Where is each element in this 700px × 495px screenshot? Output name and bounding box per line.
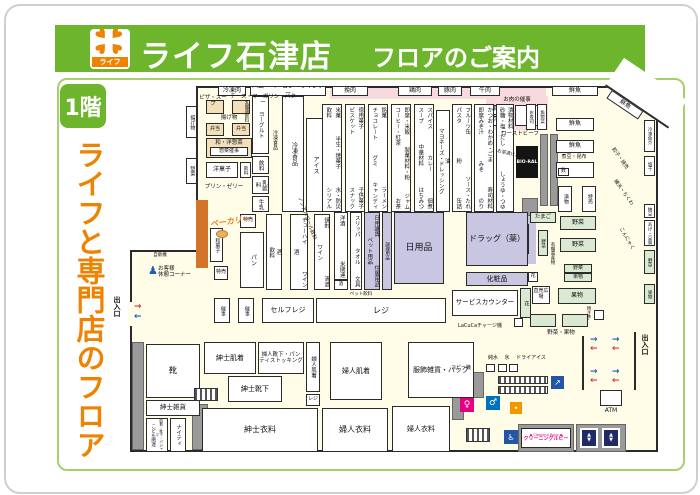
escalator	[498, 386, 548, 394]
aisle-label: 油	[443, 158, 449, 164]
aisle-label: みそ	[477, 161, 483, 172]
wall-frozen-seafood: 冷凍魚介	[644, 120, 655, 152]
aisle-label: お茶	[394, 198, 400, 209]
roast-beef-label: ローストビーフ	[492, 131, 548, 137]
pillar	[540, 134, 548, 206]
egg-case: たまご	[530, 212, 556, 223]
sale-box-low: 特売	[214, 266, 228, 280]
pudding-jelly-label: プリン・ゼリー	[200, 184, 248, 190]
wall-fried-food: 揚げ物	[186, 106, 197, 138]
fish-deli-box: 魚惣菜	[537, 104, 547, 130]
escalator-icon: ↗	[551, 376, 564, 389]
entrance-arrow-in: →	[134, 303, 142, 312]
elevator-icon: ▲▼	[602, 428, 620, 448]
aisle-label: のり	[477, 198, 483, 209]
pure-water-label: 純水	[484, 356, 502, 362]
mens-wear-area: 紳士衣料	[202, 408, 318, 452]
entrance-arrow-out: ←	[590, 377, 598, 386]
womens-toilet-icon: ♀	[460, 398, 474, 412]
dept-chicken: 鶏肉	[398, 86, 432, 96]
saiji-box: 催事	[238, 298, 254, 323]
sale-box: 特売	[582, 186, 596, 212]
aisle-label: ラーメン	[380, 187, 386, 209]
sushi-box: お寿司	[526, 104, 536, 130]
stairs	[466, 428, 490, 442]
mens-socks-area: 紳士靴下	[228, 376, 282, 402]
aisle-mayo-oil: マヨネーズ・ドレッシング 油	[436, 110, 450, 212]
aisle-biscuit: ビスケットスナック 徳用菓子子供菓子	[345, 104, 365, 212]
drink-box: 飲料	[240, 162, 251, 178]
ladies-underwear-area: 婦人肌着	[330, 342, 382, 400]
aisle-label: 米菓	[334, 107, 340, 118]
aisle-label: ビスケット	[348, 107, 354, 135]
daily-goods-block: 日用品	[394, 212, 444, 284]
produce-case	[530, 314, 556, 327]
slipper-towel-aisle: スリッパタオル文具	[350, 212, 362, 290]
entrance-arrow-out: ←	[612, 345, 620, 354]
bento-box: 弁当	[232, 123, 250, 136]
flower-box: 花	[528, 272, 538, 282]
dept-ground-meat: 挽肉	[332, 86, 368, 96]
fruit-small-case: 果物	[564, 273, 592, 282]
fish-case: 鮮魚	[556, 140, 594, 153]
aisle-label: 日用雑貨	[373, 215, 379, 237]
cleaning-shop: ◆ Cleaning Ruby ◆ クリーニングルビー	[521, 428, 571, 448]
rest-corner-label: お客様休憩コーナー	[158, 266, 202, 279]
person-icon: ♟	[148, 264, 158, 277]
mens-toilet-icon: ♂	[486, 396, 500, 410]
aisle-drink-snack: 飲料シリアル 米菓半生・焼菓子水・防災	[322, 104, 342, 212]
wall-natto: 納豆	[644, 204, 655, 218]
milk-aisle: 牛乳	[252, 196, 269, 212]
aisle-seasoning: 砂糖・塩・だししょうゆ・つゆ 漬物材料	[496, 104, 514, 212]
bio-ral-shop: BIO-RAL	[516, 146, 538, 178]
ladies-wear-area: 婦人衣料	[322, 408, 388, 452]
aisle-label: フルーツ缶	[464, 107, 470, 135]
kids-area: こども関連 肌着・靴下・パジャマ	[146, 418, 168, 452]
fried-food-label: 揚げ物	[216, 115, 242, 121]
aisle-label: 米関連	[338, 261, 344, 278]
aisle-label: スナック	[348, 187, 354, 209]
dept-fish: 鮮魚	[552, 86, 598, 96]
saiji-box: 催事	[214, 298, 230, 323]
pet-goods-aisle: ペット用品 日用雑貨住居用品	[364, 212, 380, 290]
bakery-strip	[196, 200, 208, 268]
floor-guide-page: ♥ ♥ ♥ ♥ ライフ ライフ石津店 フロアのご案内 1階 ライフと専門店のフロ…	[0, 0, 700, 495]
aisle-label: かつお・わかめ・ごま	[486, 107, 492, 162]
checkout-registers: レジ	[316, 298, 446, 323]
aisle-label: 即席・米飯	[403, 107, 409, 135]
aisle-label: ジャム	[403, 193, 409, 210]
entrance-arrow-out: ←	[590, 345, 598, 354]
entrance-left-label: 出入口	[112, 296, 122, 317]
stairs	[194, 388, 218, 401]
cosmetics-block: 化粧品	[466, 272, 528, 286]
atm-label: ATM	[600, 408, 622, 415]
aisle-label: 佃煮	[426, 198, 432, 209]
flower-strip: 花	[520, 288, 531, 318]
aisle-label: ペット用品	[366, 237, 372, 265]
veg-fruit-label: 野菜・果物	[538, 330, 584, 336]
wall-fruit: 果物	[644, 284, 655, 304]
mens-underwear-area: 紳士肌着	[204, 342, 256, 374]
floor-badge: 1階	[60, 84, 106, 128]
vending-label: 自販機	[146, 253, 174, 258]
aisle-label: キャンディ	[371, 182, 377, 210]
store-title: ライフ石津店	[140, 31, 332, 76]
life-logo: ♥ ♥ ♥ ♥ ライフ	[90, 29, 130, 69]
aisle-label: 子供菓子	[357, 187, 363, 209]
aisle-label: 飲料	[268, 247, 274, 258]
veg-case: 野菜	[560, 238, 596, 252]
aisle-label: 飲料	[325, 107, 331, 118]
sozai-box: 和・洋惣菜 惣菜催事	[206, 138, 252, 158]
aisle-label: 缶詰	[455, 198, 461, 209]
aisle-label: 水・防災	[334, 187, 340, 209]
ladies-socks-area: 婦人靴下・パンティストッキング	[258, 342, 304, 374]
nimame-box: 麩	[556, 162, 594, 178]
frozen-food-aisle: 冷凍食品	[282, 96, 304, 212]
organic-label: 有機農産物	[549, 242, 555, 265]
aisle-soup-spice: スープ中華材料はちみつ スパイスカレー佃煮	[414, 104, 434, 212]
nighty-area: ナイティ	[170, 418, 186, 452]
aisle-label: マヨネーズ・ドレッシング	[437, 128, 443, 194]
veg-case: 野菜	[560, 216, 596, 230]
aisle-label: 半生・焼菓子	[334, 136, 340, 169]
dry-ice-label: ドライアイス	[512, 356, 550, 362]
aisle-label: 清酒	[323, 276, 329, 287]
aisle-label: ソース・たれ	[464, 176, 470, 209]
liquor-aisle-4: 洋酒米関連	[334, 212, 348, 280]
lactic-drink-label: 乳酸菌飲料	[243, 100, 249, 123]
fruit-case: 果物	[558, 288, 596, 304]
drugstore-block: ドラッグ（薬）	[466, 212, 528, 266]
entrance-arrow-out: ←	[134, 313, 142, 322]
sozai-label: 和・洋惣菜	[215, 140, 243, 146]
dry-ice-machine	[509, 364, 518, 372]
mens-goods-area: 紳士雑貨	[146, 400, 200, 416]
wall-vegetable: 野菜	[644, 250, 655, 274]
ladies-wear-area-2: 婦人衣料	[392, 406, 450, 452]
liquor-aisle-3: ワイン 焼酎清酒	[314, 214, 330, 290]
bento-box: 弁当	[206, 123, 224, 136]
aisle-label: コーヒー・紅茶	[394, 107, 400, 146]
liquor-aisle-1: 飲料 酒	[266, 214, 282, 290]
aisle-label: 住居用品	[373, 265, 379, 287]
accessible-toilet-icon: ♿	[504, 430, 518, 444]
water-machine	[486, 364, 495, 372]
dept-pork: 豚肉	[438, 86, 462, 96]
elevator-icon: ▲▼	[580, 428, 598, 448]
aisle-label: 漬物材料	[506, 107, 512, 129]
nimame-label: 煮豆・昆布	[552, 155, 596, 161]
veg-strip: 野菜	[538, 230, 548, 256]
aisle-label: ワイン	[300, 271, 306, 288]
aisle-label: 寿司材料	[486, 187, 492, 209]
kids-sub-label: 肌着・靴下・パジャマ	[156, 419, 164, 451]
logo-name-banner: ライフ	[92, 57, 128, 67]
chokubai-box: 直売広場	[532, 286, 550, 304]
frozen-face-label: 冷凍食品	[272, 130, 279, 150]
lacuca-machine	[514, 318, 523, 327]
aisle-coffee-tea: コーヒー・紅茶お茶 即席・米飯製菓材料・粉ジャム	[391, 104, 411, 212]
entrance-right-label: 出入口	[640, 334, 650, 355]
cheese-butter-label: チーズ・マーガリン・バター	[230, 94, 296, 107]
aisle-label: カレー	[426, 155, 432, 172]
aisle-label: 酒	[292, 249, 298, 255]
aisle-label: 徳用菓子	[357, 107, 363, 129]
aisle-label: 中華材料	[417, 144, 423, 166]
fish-case: 鮮魚	[556, 118, 594, 131]
aisle-miso-nori: 即席みそ汁みそのり かつお・わかめ・ごま寿司材料	[474, 104, 494, 212]
ice-machine	[498, 364, 507, 372]
aisle-label: タオル	[353, 248, 359, 265]
aisle-label: 酒	[275, 249, 281, 255]
milk-drink-aisle: 乳飲料	[252, 176, 269, 194]
sake-small-box: 酒	[334, 280, 348, 290]
aisle-label: スープ	[417, 107, 423, 124]
fu-label: 麩	[558, 168, 569, 176]
ladies-underwear-strip: 婦人肌着	[306, 342, 320, 392]
drink-aisle: 飲料	[252, 156, 269, 174]
dept-beef: 牛肉	[470, 86, 500, 96]
guide-title: フロアのご案内	[372, 38, 540, 73]
aisle-label: ワイン	[316, 244, 322, 261]
atm-box	[600, 390, 622, 406]
aisle-label: チョコレート	[371, 107, 377, 140]
bread-icon	[216, 230, 228, 238]
corridor-wall	[634, 332, 636, 390]
aisle-label: スリッパ	[353, 215, 359, 237]
backyard-strip	[132, 342, 144, 450]
aisle-label: パスタ	[455, 107, 461, 124]
aisle-label: 即席みそ汁	[477, 107, 483, 135]
aisle-label: 洋酒	[338, 215, 344, 226]
wall-tofu: あげ・豆腐	[644, 220, 655, 246]
ice-cream-aisle: アイス	[306, 118, 323, 212]
aisle-label: はちみつ	[417, 187, 423, 209]
aisle-label: スパイス	[426, 107, 432, 129]
bread-aisle: パン	[240, 232, 264, 288]
floor-tagline: ライフと専門店のフロア	[68, 140, 110, 470]
aisle-label: グミ	[371, 155, 377, 166]
aisle-label: 粉	[455, 158, 461, 164]
wall-sozai: 惣菜	[186, 158, 197, 184]
corridor-wall	[582, 332, 584, 390]
wall-dried-fish: 塩干	[644, 156, 655, 176]
western-sweets-box: 洋菓子	[206, 162, 238, 178]
service-counter: サービスカウンター	[452, 290, 518, 316]
cleaning-shop-name: クリーニングルビー	[523, 437, 568, 443]
shoes-area: 靴	[146, 344, 200, 398]
aisle-chocolate: チョコレートグミキャンディ 銘菓ラーメン	[368, 104, 388, 212]
aisle-label: 銘菓	[380, 107, 386, 118]
aisle-label: 焼酎	[323, 217, 329, 228]
family-toilet-icon: •	[510, 402, 522, 414]
inner-register-box: レジ	[306, 394, 320, 406]
aisle-label: しょうゆ・つゆ	[498, 171, 504, 210]
veg-small-case: 野菜	[564, 264, 592, 273]
sozai-event-box: 惣菜催事	[210, 147, 248, 156]
copy-machine-label: コピー機	[446, 366, 476, 372]
meat-event-title: お肉の催事	[488, 97, 546, 103]
cooking-goods-strip: 調理用品	[382, 212, 392, 290]
escalator	[498, 376, 548, 384]
pet-drink-label: ペット飲料	[344, 292, 378, 297]
aisle-pasta-sauce: パスタ粉缶詰 フルーツ缶ソース・たれ	[452, 104, 472, 212]
aisle-label: シリアル	[325, 187, 331, 209]
pizza-soup-label: ピザ・スープ	[198, 95, 228, 108]
entrance-arrow-out: ←	[612, 377, 620, 386]
yakiimo-label: 焼き芋	[585, 306, 591, 320]
ice-label: 氷	[502, 356, 512, 362]
lacuca-label: LaCuCaチャージ機	[448, 324, 512, 330]
self-checkout: セルフレジ	[262, 298, 314, 323]
aisle-label: 製菓材料・粉	[403, 147, 409, 180]
aisle-label: 文具	[353, 276, 359, 287]
aisle-label: 砂糖・塩・だし	[498, 107, 504, 146]
pickles-box: 漬物	[558, 186, 572, 212]
yakiimo-box	[594, 310, 604, 320]
